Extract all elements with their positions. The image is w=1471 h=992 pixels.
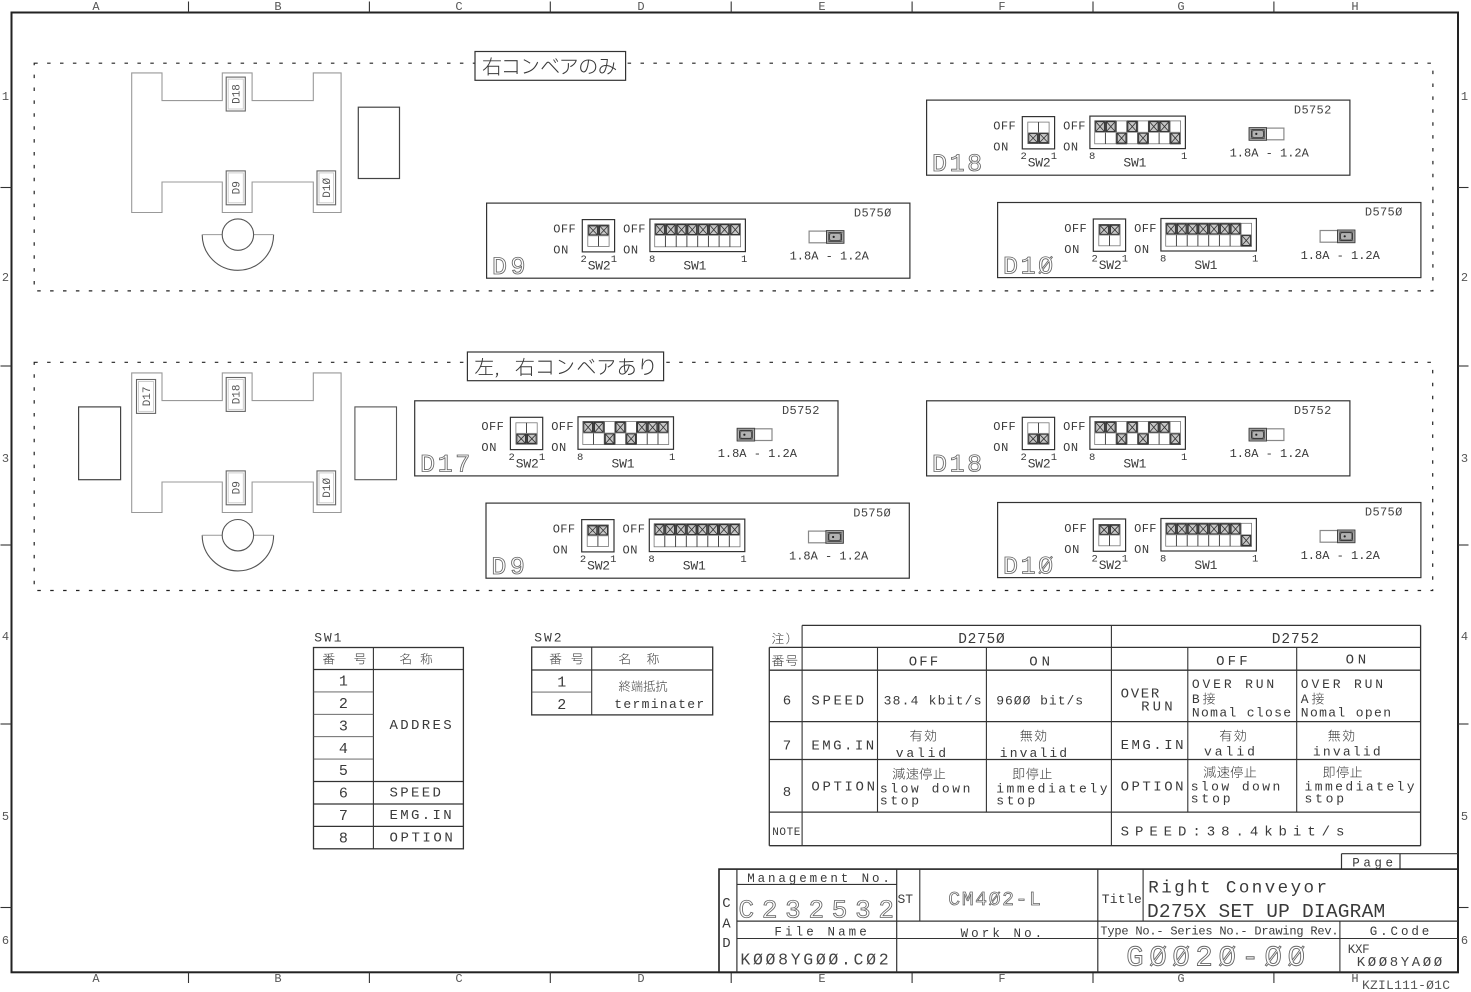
svg-text:7: 7 <box>339 808 348 825</box>
svg-text:D1Ø: D1Ø <box>1003 252 1053 281</box>
svg-text:ON: ON <box>623 544 638 558</box>
svg-text:G: G <box>1177 0 1184 14</box>
svg-text:OFF: OFF <box>1063 120 1085 134</box>
svg-text:SW1: SW1 <box>1123 156 1146 171</box>
svg-text:1.8A - 1.2A: 1.8A - 1.2A <box>718 447 798 461</box>
svg-text:SW1: SW1 <box>1194 258 1217 273</box>
svg-text:3: 3 <box>2 452 9 466</box>
svg-text:B: B <box>274 972 281 986</box>
svg-text:2: 2 <box>1461 271 1468 285</box>
svg-text:8: 8 <box>339 831 348 848</box>
svg-text:F: F <box>998 0 1005 14</box>
svg-text:1: 1 <box>1252 254 1258 266</box>
svg-text:1: 1 <box>669 452 675 464</box>
svg-text:2: 2 <box>509 452 515 464</box>
svg-text:D575Ø: D575Ø <box>1365 506 1402 520</box>
svg-text:ON: ON <box>993 141 1008 155</box>
svg-text:5: 5 <box>1461 810 1468 824</box>
svg-text:8: 8 <box>1089 151 1095 163</box>
svg-text:D17: D17 <box>142 386 154 406</box>
svg-text:D275X SET UP DIAGRAM: D275X SET UP DIAGRAM <box>1147 901 1385 923</box>
svg-text:ON: ON <box>481 441 496 455</box>
svg-text:terminater: terminater <box>614 697 704 712</box>
svg-text:C: C <box>455 972 462 986</box>
svg-text:SPEED: SPEED <box>390 785 441 801</box>
svg-text:D: D <box>722 936 730 952</box>
svg-text:SW2: SW2 <box>1028 156 1051 171</box>
svg-text:1: 1 <box>1181 151 1187 163</box>
svg-text:Type No.- Series No.- Drawing: Type No.- Series No.- Drawing Rev. <box>1100 924 1338 938</box>
svg-text:D5752: D5752 <box>1294 404 1331 418</box>
svg-text:1: 1 <box>740 554 746 566</box>
svg-text:ON: ON <box>1063 141 1078 155</box>
svg-text:1: 1 <box>1051 151 1057 163</box>
svg-text:OFF: OFF <box>623 523 645 537</box>
svg-text:SW1: SW1 <box>612 456 635 471</box>
svg-text:RUN: RUN <box>1141 700 1173 716</box>
svg-text:D5752: D5752 <box>1294 103 1331 117</box>
svg-text:1: 1 <box>2 90 9 104</box>
svg-text:5: 5 <box>2 810 9 824</box>
svg-text:2: 2 <box>1091 254 1097 266</box>
svg-text:SW2: SW2 <box>1099 258 1122 273</box>
svg-text:2: 2 <box>580 554 586 566</box>
svg-text:OFF: OFF <box>553 223 575 237</box>
svg-text:ON: ON <box>1134 543 1149 557</box>
svg-text:H: H <box>1351 0 1358 14</box>
svg-text:Nomal open: Nomal open <box>1301 706 1391 721</box>
svg-text:SW1: SW1 <box>1194 558 1217 573</box>
svg-text:D275Ø: D275Ø <box>958 632 1005 648</box>
svg-text:D: D <box>637 0 644 14</box>
svg-text:ON: ON <box>1063 441 1078 455</box>
svg-text:ON: ON <box>553 544 568 558</box>
svg-text:OFF: OFF <box>623 223 645 237</box>
svg-text:E: E <box>818 972 825 986</box>
svg-text:D18: D18 <box>232 384 244 404</box>
svg-text:ON: ON <box>1134 243 1149 257</box>
svg-text:4: 4 <box>1461 630 1468 644</box>
svg-text:D17: D17 <box>420 451 470 480</box>
svg-text:SW1: SW1 <box>683 559 706 574</box>
svg-text:8: 8 <box>1160 254 1166 266</box>
svg-text:ON: ON <box>551 441 566 455</box>
svg-text:1: 1 <box>1461 90 1468 104</box>
svg-text:1.8A - 1.2A: 1.8A - 1.2A <box>1230 147 1310 161</box>
svg-text:1.8A - 1.2A: 1.8A - 1.2A <box>1301 249 1381 263</box>
svg-text:OFF: OFF <box>1134 522 1156 536</box>
svg-text:7: 7 <box>783 739 791 755</box>
svg-text:D2752: D2752 <box>1272 632 1319 648</box>
svg-text:1: 1 <box>539 452 545 464</box>
svg-text:8: 8 <box>648 554 654 566</box>
svg-text:SW1: SW1 <box>683 259 706 274</box>
svg-text:ON: ON <box>993 441 1008 455</box>
svg-text:SW1: SW1 <box>314 631 341 646</box>
svg-text:D575Ø: D575Ø <box>854 206 891 220</box>
svg-text:6: 6 <box>339 786 348 803</box>
svg-text:2: 2 <box>1020 151 1026 163</box>
svg-text:8: 8 <box>649 254 655 266</box>
svg-text:38.4 kbit/s: 38.4 kbit/s <box>884 693 982 708</box>
svg-text:A: A <box>92 972 100 986</box>
svg-text:D18: D18 <box>932 451 982 480</box>
svg-text:4: 4 <box>339 741 348 758</box>
svg-text:SW1: SW1 <box>1123 456 1146 471</box>
svg-text:ON: ON <box>553 244 568 258</box>
svg-text:2: 2 <box>580 254 586 266</box>
svg-text:1.8A - 1.2A: 1.8A - 1.2A <box>1230 447 1310 461</box>
svg-text:1.8A - 1.2A: 1.8A - 1.2A <box>1301 549 1381 563</box>
svg-text:1: 1 <box>557 674 566 691</box>
svg-text:B: B <box>274 0 281 14</box>
svg-text:Nomal close: Nomal close <box>1192 706 1291 721</box>
svg-text:OFF: OFF <box>1064 222 1086 236</box>
svg-text:OFF: OFF <box>553 523 575 537</box>
svg-text:1: 1 <box>610 554 616 566</box>
svg-text:OFF: OFF <box>909 654 938 670</box>
svg-text:1: 1 <box>611 254 617 266</box>
svg-text:D9: D9 <box>232 481 244 494</box>
svg-text:invalid: invalid <box>1313 744 1381 759</box>
svg-text:5: 5 <box>339 763 348 780</box>
svg-text:CM4Ø2-L: CM4Ø2-L <box>948 889 1040 911</box>
svg-text:2: 2 <box>557 697 566 714</box>
svg-text:1: 1 <box>741 254 747 266</box>
svg-text:SW2: SW2 <box>1028 456 1051 471</box>
svg-text:OFF: OFF <box>1134 222 1156 236</box>
svg-text:8: 8 <box>783 785 791 801</box>
svg-text:A: A <box>722 917 731 933</box>
svg-text:3: 3 <box>1461 452 1468 466</box>
svg-text:OFF: OFF <box>551 420 573 434</box>
svg-text:96ØØ bit/s: 96ØØ bit/s <box>996 693 1083 708</box>
svg-text:valid: valid <box>1204 744 1255 759</box>
svg-text:1: 1 <box>339 674 348 691</box>
svg-text:File Name: File Name <box>774 926 866 940</box>
svg-text:SW2: SW2 <box>588 259 611 274</box>
svg-text:6: 6 <box>1461 934 1468 948</box>
svg-text:D575Ø: D575Ø <box>853 506 890 520</box>
svg-text:3: 3 <box>339 718 348 735</box>
svg-text:SPEED: SPEED <box>811 693 864 709</box>
svg-text:8: 8 <box>1160 554 1166 566</box>
svg-text:1: 1 <box>1122 254 1128 266</box>
svg-text:1: 1 <box>1181 452 1187 464</box>
svg-text:F: F <box>998 972 1005 986</box>
svg-text:D18: D18 <box>232 84 244 104</box>
svg-text:SW2: SW2 <box>587 559 610 574</box>
svg-text:KZIL111-Ø1C: KZIL111-Ø1C <box>1362 978 1450 992</box>
svg-text:8: 8 <box>1089 452 1095 464</box>
svg-text:D18: D18 <box>932 150 982 179</box>
svg-text:4: 4 <box>2 630 9 644</box>
svg-text:C: C <box>722 896 730 912</box>
svg-text:1: 1 <box>1051 452 1057 464</box>
svg-text:invalid: invalid <box>1000 746 1067 761</box>
svg-text:1: 1 <box>1122 554 1128 566</box>
svg-text:8: 8 <box>577 452 583 464</box>
svg-text:1.8A - 1.2A: 1.8A - 1.2A <box>790 250 870 264</box>
svg-text:Title: Title <box>1102 892 1142 907</box>
svg-text:C232532: C232532 <box>739 896 895 926</box>
svg-text:A: A <box>92 0 100 14</box>
svg-text:2: 2 <box>339 696 348 713</box>
svg-text:SW2: SW2 <box>534 631 561 646</box>
svg-text:SW2: SW2 <box>516 456 539 471</box>
svg-text:valid: valid <box>896 746 946 761</box>
svg-text:6: 6 <box>2 934 9 948</box>
svg-text:ON: ON <box>623 244 638 258</box>
svg-text:1: 1 <box>1252 554 1258 566</box>
svg-text:H: H <box>1351 972 1358 986</box>
svg-text:D5752: D5752 <box>782 404 819 418</box>
svg-text:D9: D9 <box>232 181 244 194</box>
svg-text:2: 2 <box>2 271 9 285</box>
svg-text:SW2: SW2 <box>1099 558 1122 573</box>
svg-text:D575Ø: D575Ø <box>1365 206 1402 220</box>
svg-text:2: 2 <box>1020 452 1026 464</box>
svg-text:ON: ON <box>1064 543 1079 557</box>
svg-text:1.8A - 1.2A: 1.8A - 1.2A <box>789 550 869 564</box>
svg-text:OFF: OFF <box>993 420 1015 434</box>
svg-text:ON: ON <box>1064 243 1079 257</box>
svg-text:ST: ST <box>898 892 914 907</box>
svg-text:OFF: OFF <box>481 420 503 434</box>
svg-text:OFF: OFF <box>1064 522 1086 536</box>
svg-text:E: E <box>818 0 825 14</box>
svg-text:D: D <box>637 972 644 986</box>
svg-text:D1Ø: D1Ø <box>322 178 334 198</box>
svg-text:D1Ø: D1Ø <box>322 478 334 498</box>
svg-text:OFF: OFF <box>993 120 1015 134</box>
svg-text:6: 6 <box>783 693 791 709</box>
svg-text:OFF: OFF <box>1216 654 1248 670</box>
svg-text:NOTE: NOTE <box>772 827 801 839</box>
svg-text:2: 2 <box>1091 554 1097 566</box>
svg-text:OFF: OFF <box>1063 420 1085 434</box>
svg-text:D1Ø: D1Ø <box>1003 552 1053 581</box>
svg-text:C: C <box>455 0 462 14</box>
